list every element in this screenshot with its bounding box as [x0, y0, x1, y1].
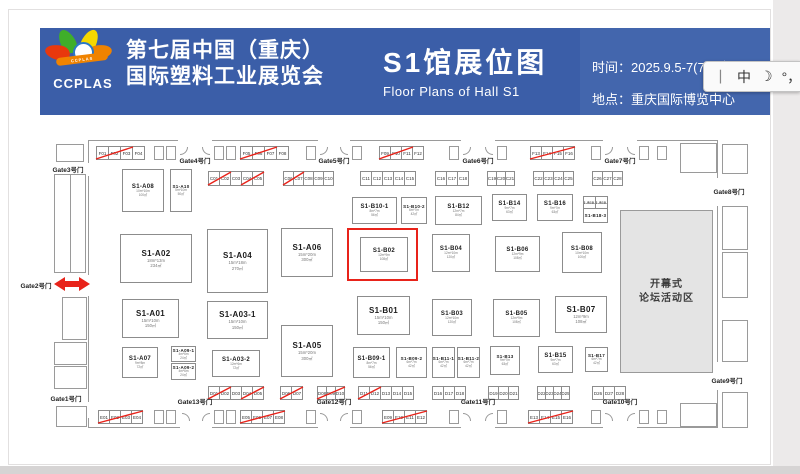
ime-moon-icon[interactable]: ☽: [760, 68, 773, 85]
wall-gap: [87, 163, 90, 176]
gate-label-gate3: Gate3号门: [52, 164, 83, 174]
booth-S1-B01: S1-B0115m*10m150㎡: [357, 296, 410, 335]
cell-group: C19C20C21: [487, 171, 515, 186]
door-cell: [497, 410, 507, 424]
wall-gap: [461, 139, 495, 142]
door-cell: [352, 410, 362, 424]
ime-chinese-mode-button[interactable]: 中: [737, 67, 751, 87]
booth-area: 84㎡: [455, 214, 462, 218]
booth-area: 150㎡: [232, 325, 243, 330]
door-cell: [352, 146, 362, 160]
cell-group: D11D12D13D14D15: [358, 386, 414, 400]
cell-group: C16C17C18: [435, 171, 469, 186]
door-cell: [449, 146, 459, 160]
booth-area: 24㎡: [180, 357, 187, 361]
strike-line: [240, 410, 285, 424]
booth-area: 150㎡: [145, 323, 156, 328]
wall-room: [70, 174, 86, 273]
booth-S1-B11-2: S1-B11-26m*7m42㎡: [457, 347, 480, 378]
booth-area: 42㎡: [440, 365, 447, 369]
cell-C28: C28: [612, 171, 623, 186]
booth-area: 300㎡: [301, 257, 312, 262]
booth-S1-A05: S1-A0515m*20m300㎡: [281, 325, 333, 377]
door-cell: [591, 410, 601, 424]
strike-line: [358, 386, 381, 400]
cell-D21: D21: [508, 386, 519, 400]
booth-area: 42㎡: [593, 362, 600, 366]
booth-S1-A10: S1-A105m*10m50㎡: [170, 169, 192, 212]
booth-S1-B13: S1-B139m*7m63㎡: [490, 346, 520, 375]
cell-group: C26C27C28: [592, 171, 623, 186]
gate-label-gate6: Gate6号门: [462, 155, 493, 165]
booth-area: 108㎡: [512, 321, 521, 325]
wall-gap: [178, 139, 212, 142]
door-cell: [226, 410, 236, 424]
door-cell: [497, 146, 507, 160]
booth-S1-B06: S1-B0612m*9m108㎡: [495, 236, 540, 272]
booth-label: S1-B18-2: [595, 201, 608, 205]
gate-label-gate11: Gate11号门: [461, 396, 495, 406]
booth-label: S1-A06: [293, 243, 322, 252]
strike-line: [96, 146, 133, 160]
ime-punctuation-button[interactable]: °，: [782, 67, 800, 87]
booth-area: 72㎡: [233, 367, 240, 371]
booth-S1-B03: S1-B0312m*10m120㎡: [432, 299, 472, 336]
cell-group: E09E10E11E12: [382, 410, 427, 424]
cell-F04: F04: [132, 146, 145, 160]
door-cell: [154, 146, 164, 160]
screen: CCPLAS CCPLAS 第七届中国（重庆） 国际塑料工业展览会 S1馆展位图…: [0, 0, 800, 474]
booth-S1-B10-1: S1-B10-18m*7m56㎡: [352, 197, 397, 224]
cell-group: F05F06F07F08: [240, 146, 289, 160]
wall-room: [54, 366, 87, 389]
gate-label-gate9: Gate9号门: [711, 375, 742, 385]
cell-group: F13F14F15F16: [530, 146, 575, 160]
gate-label-gate10: Gate10号门: [603, 396, 638, 406]
wall-room: [722, 206, 748, 250]
strike-line: [98, 410, 143, 424]
booth-S1-B08: S1-B0810m*10m100㎡: [562, 232, 602, 273]
cell-group: E01E02E03E04: [98, 410, 143, 424]
ime-toolbar[interactable]: 丨中☽°，8: [703, 61, 800, 92]
strike-line: [528, 410, 573, 424]
cell-group: D06D07: [280, 386, 303, 400]
door-cell: [657, 146, 667, 160]
forum-label: 论坛活动区: [639, 292, 694, 306]
door-cell: [306, 410, 316, 424]
booth-S1-A04: S1-A0415m*18m270㎡: [207, 229, 268, 293]
wall-gap: [603, 426, 637, 429]
cell-group: E05E06E07E08: [240, 410, 285, 424]
booth-area: 150㎡: [378, 320, 389, 325]
cell-group: C01C02C03C04C05: [208, 171, 264, 186]
cell-F12: F12: [412, 146, 424, 160]
cell-C18: C18: [457, 171, 469, 186]
wall-room: [680, 403, 717, 427]
booth-label: S1-B07: [567, 305, 596, 314]
wall-room: [54, 174, 71, 273]
booth-area: 108㎡: [575, 319, 586, 324]
booth-label: S1-A05: [293, 341, 322, 350]
wall-room: [722, 392, 748, 428]
booth-S1-B07: S1-B0712m*9m108㎡: [555, 296, 607, 333]
gate-label-gate4: Gate4号门: [179, 155, 210, 165]
booth-S1-B14: S1-B149m*7m63㎡: [492, 194, 527, 221]
booth-area: 234㎡: [150, 263, 161, 268]
booth-area: 24㎡: [180, 374, 187, 378]
booth-area: 270㎡: [232, 266, 243, 271]
strike-line: [280, 386, 303, 400]
booth-label: S1-A02: [142, 249, 171, 258]
cell-group: D01D02D03D04D05: [208, 386, 264, 400]
booth-S1-A09-2: S1-A09-24m*6m24㎡: [171, 363, 196, 380]
gate-label-gate2: Gate2号门: [20, 280, 51, 290]
floor-plan: F01F02F03F04F05F06F07F08F09F10F11F12F13F…: [0, 0, 800, 474]
wall-room: [56, 144, 84, 162]
highlight-box-s1-b02: [347, 228, 418, 281]
cell-group: F01F02F03F04: [96, 146, 145, 160]
wall-room: [722, 320, 748, 362]
wall-room: [722, 144, 748, 174]
wall-gap: [603, 139, 637, 142]
booth-label: S1-B01: [369, 306, 398, 315]
door-cell: [214, 146, 224, 160]
booth-S1-B09-2: S1-B09-26m*7m42㎡: [396, 347, 427, 378]
booth-S1-A03-2: S1-A03-212m*6m72㎡: [212, 350, 260, 377]
strike-line: [240, 146, 277, 160]
window-bottom-edge: [0, 466, 800, 474]
wall-gap: [87, 402, 90, 418]
cell-group: F09F10F11F12: [379, 146, 424, 160]
booth-area: 56㎡: [371, 214, 378, 218]
door-cell: [449, 410, 459, 424]
strike-line: [530, 146, 575, 160]
booth-area: 50㎡: [178, 193, 185, 197]
wall-gap: [180, 426, 212, 429]
booth-S1-A08: S1-A0810m*10m100㎡: [122, 169, 164, 212]
booth-S1-B10-2: S1-B10-26m*7m42㎡: [401, 197, 427, 224]
booth-area: 100㎡: [139, 194, 148, 198]
cell-group: C11C12C13C14C15: [360, 171, 416, 186]
cell-group: D22D23D24D25: [537, 386, 570, 400]
booth-area: 63㎡: [502, 363, 509, 367]
booth-S1-A07: S1-A079m*8m72㎡: [122, 347, 158, 378]
ime-cursor-icon[interactable]: 丨: [713, 66, 728, 87]
door-cell: [591, 146, 601, 160]
door-cell: [214, 410, 224, 424]
cell-group: C06C07C08C09C10: [283, 171, 334, 186]
booth-S1-B17: S1-B176m*7m42㎡: [585, 347, 608, 372]
booth-S1-B11-1: S1-B11-16m*7m42㎡: [432, 347, 455, 378]
wall-room: [62, 297, 87, 340]
door-cell: [166, 410, 176, 424]
door-cell: [154, 410, 164, 424]
cell-D25: D25: [561, 386, 570, 400]
booth-S1-B09-1: S1-B09-18m*7m56㎡: [353, 347, 390, 378]
booth-label: S1-A01: [136, 309, 165, 318]
booth-area: 108㎡: [513, 257, 522, 261]
door-cell: [166, 146, 176, 160]
booth-S1-A09-1: S1-A09-14m*6m24㎡: [171, 346, 196, 362]
booth-area: 120㎡: [447, 256, 456, 260]
cell-C21: C21: [505, 171, 515, 186]
cell-group: E13E14E15E16: [528, 410, 573, 424]
gate-label-gate5: Gate5号门: [318, 155, 349, 165]
forum-area: 开幕式论坛活动区: [620, 210, 713, 373]
wall-room: [722, 252, 748, 298]
forum-label: 开幕式: [650, 278, 683, 292]
booth-S1-B16: S1-B169m*7m63㎡: [537, 194, 573, 221]
booth-label: S1-A03-1: [219, 310, 256, 319]
wall-gap: [318, 139, 350, 142]
cell-C15: C15: [404, 171, 416, 186]
door-cell: [639, 146, 649, 160]
strike-line: [208, 171, 231, 186]
booth-S1-B12: S1-B1212m*7m84㎡: [435, 196, 482, 225]
wall-gap: [318, 426, 350, 429]
door-cell: [639, 410, 649, 424]
booth-S1-A03-1: S1-A03-115m*10m150㎡: [207, 301, 268, 339]
strike-line: [241, 171, 264, 186]
booth-S1-A06: S1-A0615m*20m300㎡: [281, 228, 333, 277]
cell-C10: C10: [323, 171, 334, 186]
booth-label: S1-B18-3: [585, 213, 607, 218]
door-cell: [226, 146, 236, 160]
wall-room: [56, 406, 87, 427]
gate2-arrow-icon: [52, 274, 92, 294]
booth-area: 63㎡: [552, 211, 559, 215]
booth-area: 42㎡: [411, 213, 418, 217]
door-cell: [657, 410, 667, 424]
wall-room: [680, 143, 717, 173]
booth-S1-A02: S1-A0218m*13m234㎡: [120, 234, 192, 283]
door-cell: [306, 146, 316, 160]
gate-label-gate8: Gate8号门: [713, 186, 744, 196]
booth-area: 63㎡: [506, 211, 513, 215]
booth-area: 120㎡: [448, 321, 457, 325]
booth-area: 42㎡: [465, 365, 472, 369]
booth-S1-B05: S1-B0512m*9m108㎡: [493, 299, 540, 337]
gate-label-gate13: Gate13号门: [178, 396, 213, 406]
booth-S1-A01: S1-A0115m*10m150㎡: [122, 299, 179, 338]
gate-label-gate7: Gate7号门: [604, 155, 635, 165]
cell-F08: F08: [276, 146, 289, 160]
booth-area: 300㎡: [301, 356, 312, 361]
booth-S1-B04: S1-B0412m*10m120㎡: [432, 234, 470, 272]
strike-line: [283, 171, 304, 186]
wall-gap: [461, 426, 495, 429]
strike-line: [241, 386, 264, 400]
booth-label: S1-A04: [223, 251, 252, 260]
booth-S1-B18-3: S1-B18-3: [583, 208, 608, 223]
booth-S1-B15: S1-B159m*7m63㎡: [538, 346, 573, 373]
gate-label-gate1: Gate1号门: [50, 393, 81, 403]
booth-area: 63㎡: [552, 363, 559, 367]
cell-D15: D15: [402, 386, 414, 400]
gate-label-gate12: Gate12号门: [317, 396, 352, 406]
strike-line: [379, 146, 413, 160]
strike-line: [382, 410, 427, 424]
booth-area: 42㎡: [408, 365, 415, 369]
cell-C25: C25: [563, 171, 574, 186]
booth-area: 72㎡: [137, 366, 144, 370]
booth-area: 100㎡: [578, 256, 587, 260]
booth-area: 56㎡: [368, 366, 375, 370]
cell-group: C22C23C24C25: [533, 171, 574, 186]
wall-room: [54, 342, 87, 365]
